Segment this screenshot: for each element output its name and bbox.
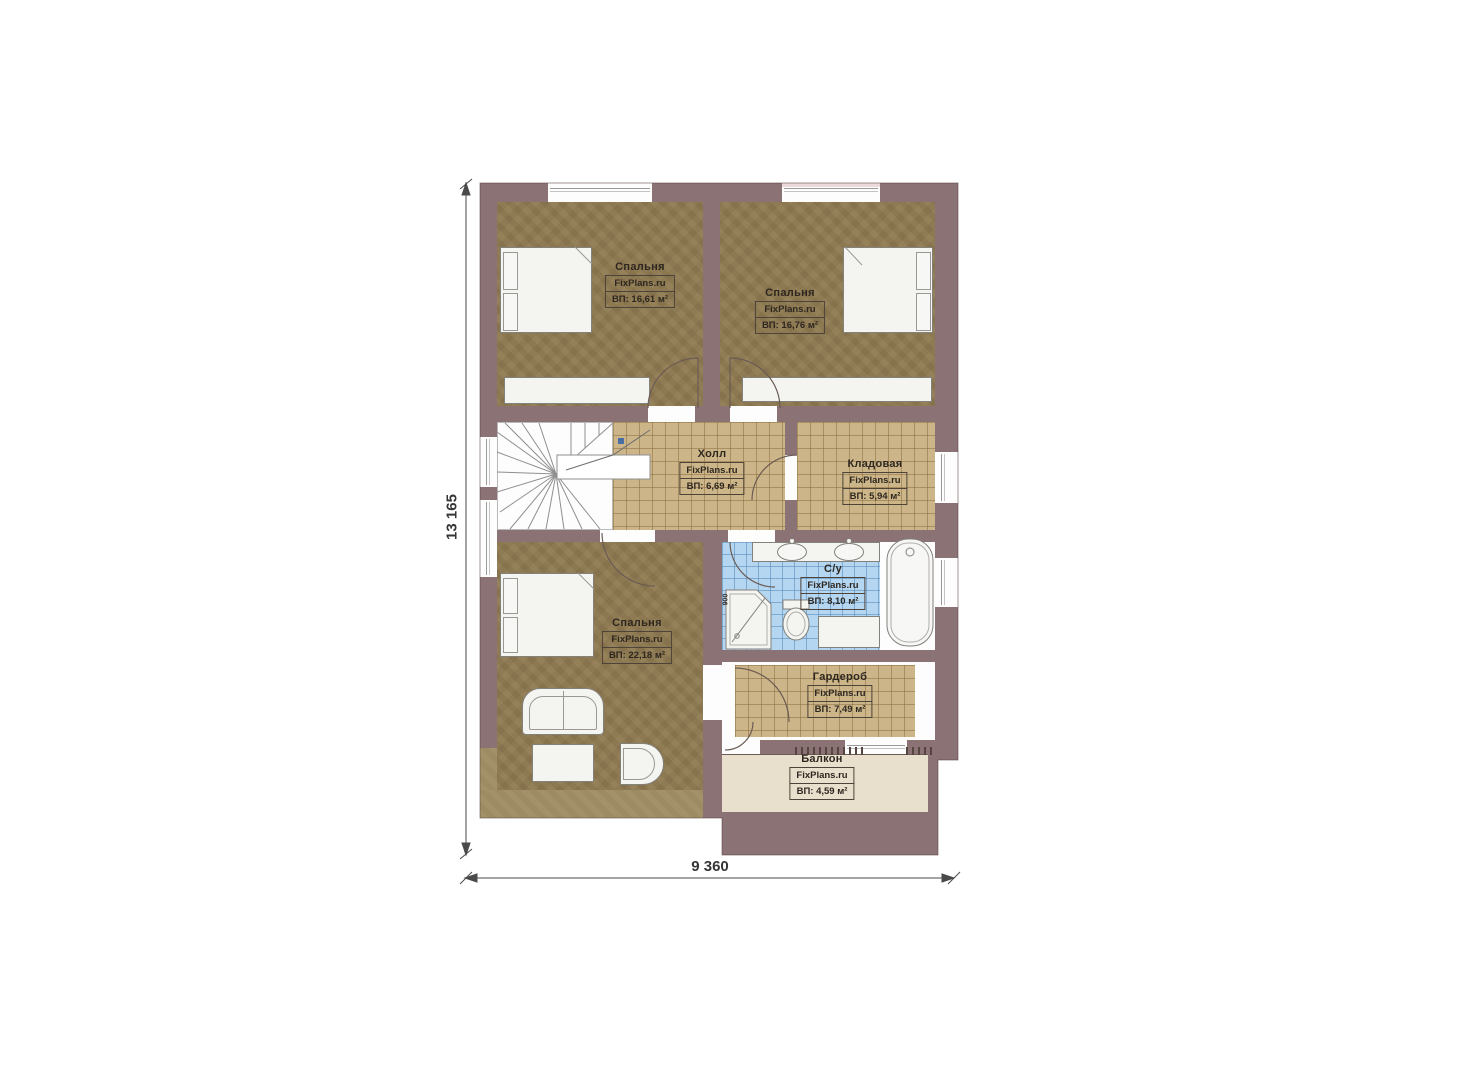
window-sill (782, 183, 880, 187)
pillow (503, 252, 518, 290)
room-area: ВП: 16,76 м² (755, 317, 825, 334)
room-label-wardrobe: Гардероб FixPlans.ru ВП: 7,49 м² (807, 671, 872, 718)
window-left-upper (480, 437, 497, 487)
window-top-left (548, 183, 652, 202)
wall-balcony-right (928, 754, 938, 812)
sink-left (777, 543, 807, 561)
room-site-watermark: FixPlans.ru (842, 472, 907, 489)
pillow (916, 293, 931, 331)
pillow (503, 617, 518, 653)
pillow (503, 293, 518, 331)
wall-between-bedrooms (703, 202, 720, 422)
room-name: Балкон (789, 753, 854, 765)
armchair (620, 743, 664, 785)
eaves-strip-left (480, 748, 497, 790)
wardrobe-cabinet-top-right (742, 377, 932, 402)
door-opening-bathroom (728, 530, 775, 542)
sofa (522, 688, 604, 735)
room-area: ВП: 4,59 м² (789, 783, 854, 800)
room-label-boxes: FixPlans.ru ВП: 7,49 м² (807, 685, 872, 718)
room-label-boxes: FixPlans.ru ВП: 22,18 м² (602, 631, 672, 664)
room-label-boxes: FixPlans.ru ВП: 6,69 м² (679, 462, 744, 495)
door-opening-storage (785, 455, 797, 500)
door-opening-balcony (722, 740, 760, 754)
room-label-boxes: FixPlans.ru ВП: 16,61 м² (605, 275, 675, 308)
room-area: ВП: 16,61 м² (605, 291, 675, 308)
window-right-upper (935, 452, 958, 503)
room-name: С/у (800, 563, 865, 575)
bathtub-niche-floor (880, 542, 935, 650)
wall-bathroom-wardrobe (722, 650, 935, 662)
wardrobe-cabinet-top-left (504, 377, 650, 404)
floor-plan-canvas: Спальня FixPlans.ru ВП: 16,61 м² Спальня… (0, 0, 1474, 1080)
room-area: ВП: 8,10 м² (800, 593, 865, 610)
wall-hall-bathroom (497, 530, 935, 542)
door-opening-bedroom-top-right (730, 406, 777, 422)
room-area: ВП: 5,94 м² (842, 488, 907, 505)
pillow (916, 252, 931, 290)
room-label-bedroom-top-right: Спальня FixPlans.ru ВП: 16,76 м² (755, 287, 825, 334)
room-site-watermark: FixPlans.ru (602, 631, 672, 648)
room-label-bathroom: С/у FixPlans.ru ВП: 8,10 м² (800, 563, 865, 610)
room-site-watermark: FixPlans.ru (789, 767, 854, 784)
balcony-railing-hatch (906, 747, 933, 755)
room-label-storage: Кладовая FixPlans.ru ВП: 5,94 м² (842, 458, 907, 505)
door-opening-bedroom-top-left (648, 406, 695, 422)
room-area: ВП: 6,69 м² (679, 478, 744, 495)
room-label-hall: Холл FixPlans.ru ВП: 6,69 м² (679, 448, 744, 495)
sink-right (834, 543, 864, 561)
room-name: Гардероб (807, 671, 872, 683)
door-opening-wardrobe (703, 665, 722, 720)
room-site-watermark: FixPlans.ru (807, 685, 872, 702)
window-left-lower (480, 500, 497, 577)
room-label-bedroom-bottom: Спальня FixPlans.ru ВП: 22,18 м² (602, 617, 672, 664)
door-opening-bedroom-bottom (600, 530, 655, 542)
pillow (503, 578, 518, 614)
room-site-watermark: FixPlans.ru (605, 275, 675, 292)
room-site-watermark: FixPlans.ru (800, 577, 865, 594)
armchair-seat (623, 748, 655, 780)
sofa-divider (563, 691, 564, 730)
room-label-boxes: FixPlans.ru ВП: 8,10 м² (800, 577, 865, 610)
dimension-height: 13 165 (444, 494, 461, 540)
room-label-bedroom-top-left: Спальня FixPlans.ru ВП: 16,61 м² (605, 261, 675, 308)
room-area: ВП: 7,49 м² (807, 701, 872, 718)
room-name: Холл (679, 448, 744, 460)
wall-bedrooms-hall (497, 406, 935, 422)
table (532, 744, 594, 782)
dimension-shower: 900 (722, 594, 729, 606)
eaves-strip-bottom (480, 790, 705, 818)
room-area: ВП: 22,18 м² (602, 647, 672, 664)
bathroom-vanity (818, 616, 880, 648)
dimension-width: 9 360 (691, 858, 729, 875)
room-label-boxes: FixPlans.ru ВП: 5,94 м² (842, 472, 907, 505)
room-name: Спальня (602, 617, 672, 629)
room-name: Кладовая (842, 458, 907, 470)
stairwell-floor (497, 422, 613, 530)
room-label-boxes: FixPlans.ru ВП: 16,76 м² (755, 301, 825, 334)
balcony-parapet (722, 812, 938, 855)
room-name: Спальня (605, 261, 675, 273)
room-site-watermark: FixPlans.ru (755, 301, 825, 318)
window-right-lower (935, 558, 958, 607)
room-name: Спальня (755, 287, 825, 299)
room-site-watermark: FixPlans.ru (679, 462, 744, 479)
room-label-balcony: Балкон FixPlans.ru ВП: 4,59 м² (789, 753, 854, 800)
room-label-boxes: FixPlans.ru ВП: 4,59 м² (789, 767, 854, 800)
